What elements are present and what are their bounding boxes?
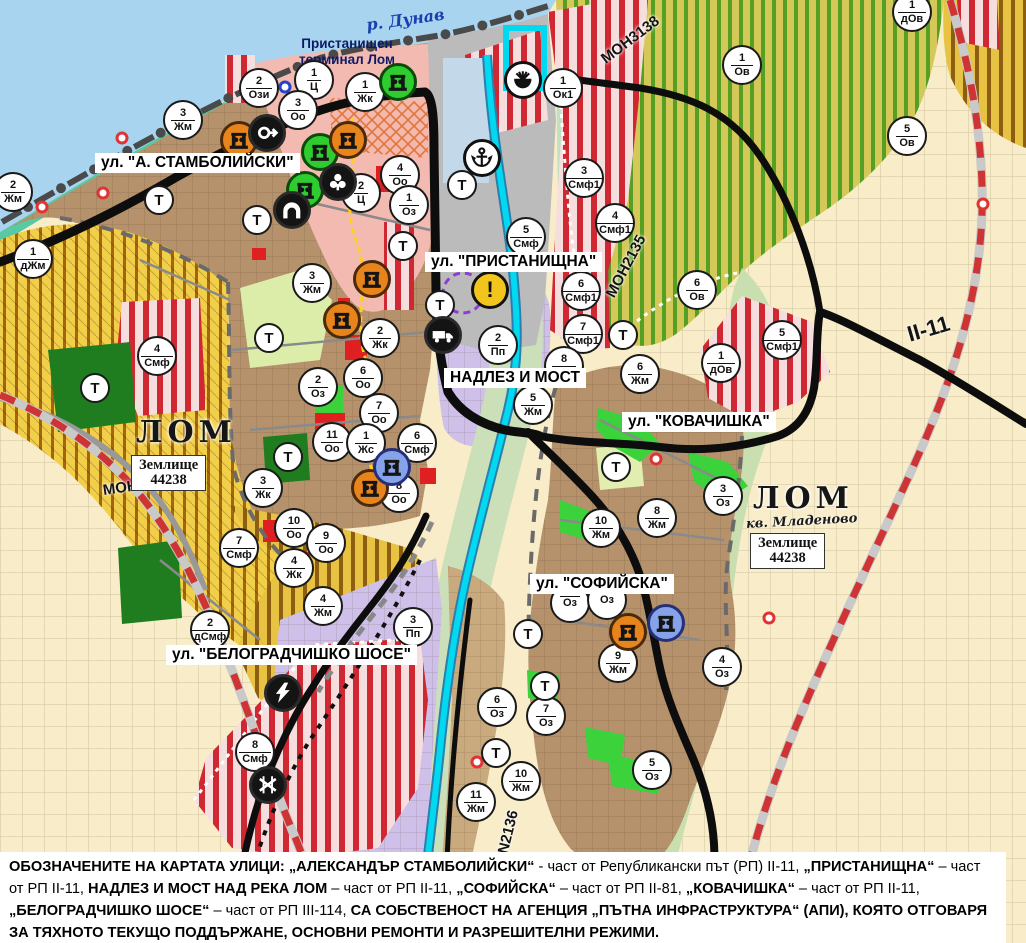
- truck-icon: [424, 316, 462, 354]
- red-dot-marker: [116, 132, 129, 145]
- land-plot-box-zemlishte-west: Землище44238: [131, 455, 206, 491]
- transformer-marker: Т: [530, 671, 560, 701]
- exclamation-icon: !: [471, 271, 509, 309]
- transformer-marker: Т: [481, 738, 511, 768]
- monument-icon: [329, 121, 367, 159]
- zone-marker-Оз-6: 6Оз: [477, 687, 517, 727]
- note-segment: – част от РП II-11,: [327, 881, 456, 897]
- note-segment: ОБОЗНАЧЕНИТЕ НА КАРТАТА УЛИЦИ: „АЛЕКСАНД…: [9, 859, 534, 875]
- zone-marker-Оз-5: 5Оз: [632, 750, 672, 790]
- zone-marker-Жм-6: 6Жм: [620, 354, 660, 394]
- label-city-lom-west: ЛОМ: [136, 415, 237, 450]
- zone-marker-Жм-3: 3Жм: [163, 100, 203, 140]
- note-segment: „КОВАЧИШКА“: [686, 881, 795, 897]
- transformer-marker: Т: [80, 373, 110, 403]
- monument-icon: [647, 604, 685, 642]
- zone-marker-Жм-4: 4Жм: [303, 586, 343, 626]
- zone-marker-Смф-7: 7Смф: [219, 528, 259, 568]
- zone-marker-Ов-1: 1Ов: [722, 45, 762, 85]
- street-label-stambolijski: ул. "А. СТАМБОЛИЙСКИ": [95, 153, 300, 173]
- red-dot-marker: [650, 453, 663, 466]
- zone-marker-Пп-2: 2Пп: [478, 325, 518, 365]
- zone-marker-Жк-4: 4Жк: [274, 548, 314, 588]
- note-segment: – част от РП II-11,: [795, 881, 920, 897]
- monument-icon: [353, 260, 391, 298]
- zone-marker-Смф1-5: 5Смф1: [762, 320, 802, 360]
- transformer-marker: Т: [254, 323, 284, 353]
- zone-marker-дСмф-2: 2дСмф: [190, 610, 230, 650]
- zone-marker-Смф1-6: 6Смф1: [561, 271, 601, 311]
- lightning-icon: [264, 674, 302, 712]
- zone-marker-Оз-1: 1Оз: [389, 185, 429, 225]
- note-segment: НАДЛЕЗ И МОСТ НАД РЕКА ЛОМ: [88, 881, 327, 897]
- zone-marker-Жм-10: 10Жм: [501, 761, 541, 801]
- note-text: ОБОЗНАЧЕНИТЕ НА КАРТАТА УЛИЦИ: „АЛЕКСАНД…: [9, 857, 997, 943]
- zone-marker-Жк-3: 3Жк: [243, 468, 283, 508]
- zone-marker-Ов-5: 5Ов: [887, 116, 927, 156]
- trefoil-icon: [319, 163, 357, 201]
- monument-icon: [373, 448, 411, 486]
- zone-marker-Ок1-1: 1Ок1: [543, 68, 583, 108]
- land-plot-box-zemlishte-east: Землище44238: [750, 533, 825, 569]
- zone-marker-Смф1-3: 3Смф1: [564, 158, 604, 198]
- transformer-marker: Т: [388, 231, 418, 261]
- map-note: ОБОЗНАЧЕНИТЕ НА КАРТАТА УЛИЦИ: „АЛЕКСАНД…: [0, 852, 1006, 943]
- zone-marker-Смф-4: 4Смф: [137, 336, 177, 376]
- zone-marker-Жм-5: 5Жм: [513, 385, 553, 425]
- red-dot-marker: [763, 612, 776, 625]
- key-icon: [248, 114, 286, 152]
- red-dot-marker: [977, 198, 990, 211]
- zone-marker-Смф1-4: 4Смф1: [595, 203, 635, 243]
- zone-marker-Смф-5: 5Смф: [506, 217, 546, 257]
- note-segment: – част от РП II-81,: [556, 881, 686, 897]
- note-segment: – част от РП III-114,: [209, 903, 350, 919]
- zone-marker-Оз-4: 4Оз: [702, 647, 742, 687]
- zone-marker-Жм-3: 3Жм: [292, 263, 332, 303]
- monument-icon: [323, 301, 361, 339]
- monument-icon: [379, 63, 417, 101]
- red-dot-marker: [97, 187, 110, 200]
- transformer-marker: Т: [513, 619, 543, 649]
- transformer-marker: Т: [608, 320, 638, 350]
- label-city-lom-mladenovo: ЛОМ: [753, 481, 854, 516]
- zoning-map-lom: 2Ози1Ц1Жк3Оо3Жм2Жм1дЖм4Оо2Ц1Оз5Смф3Смф11…: [0, 0, 1026, 943]
- arch-icon: [273, 191, 311, 229]
- zone-marker-Жм-11: 11Жм: [456, 782, 496, 822]
- zone-marker-Оо-9: 9Оо: [306, 523, 346, 563]
- note-segment: „ПРИСТАНИЩНА“: [803, 859, 934, 875]
- zone-marker-Ов-6: 6Ов: [677, 270, 717, 310]
- zone-marker-дЖм-1: 1дЖм: [13, 239, 53, 279]
- railway-crossing-icon: [249, 766, 287, 804]
- transformer-marker: Т: [601, 452, 631, 482]
- transformer-marker: Т: [242, 205, 272, 235]
- zone-marker-Жм-10: 10Жм: [581, 508, 621, 548]
- transformer-marker: Т: [144, 185, 174, 215]
- zone-marker-Жк-2: 2Жк: [360, 318, 400, 358]
- zone-marker-Оз-3: 3Оз: [703, 476, 743, 516]
- label-port-terminal: Пристанищен терминал Лом: [262, 36, 432, 67]
- note-segment: - част от Републикански път (РП) II-11,: [534, 859, 803, 875]
- street-label-sofijska: ул. "СОФИЙСКА": [530, 574, 674, 594]
- street-label-kovachishka: ул. "КОВАЧИШКА": [622, 412, 776, 432]
- note-segment: „СОФИЙСКА“: [456, 881, 556, 897]
- transformer-marker: Т: [273, 442, 303, 472]
- red-dot-marker: [36, 201, 49, 214]
- sunburst-icon: [504, 61, 542, 99]
- zone-marker-Оз-7: 7Оз: [526, 696, 566, 736]
- zone-marker-Пп-3: 3Пп: [393, 607, 433, 647]
- anchor-icon: [463, 139, 501, 177]
- street-label-pristanishtna: ул. "ПРИСТАНИЩНА": [425, 252, 602, 272]
- zone-marker-Оз-2: 2Оз: [298, 367, 338, 407]
- zone-marker-Жм-8: 8Жм: [637, 498, 677, 538]
- zone-marker-Оо-6: 6Оо: [343, 358, 383, 398]
- monument-icon: [609, 613, 647, 651]
- street-label-nadlez-i-most: НАДЛЕЗ И МОСТ: [444, 368, 586, 388]
- zone-marker-дОв-1: 1дОв: [701, 343, 741, 383]
- zone-marker-Ози-2: 2Ози: [239, 68, 279, 108]
- street-label-belogradchishko: ул. "БЕЛОГРАДЧИШКО ШОСЕ": [166, 645, 417, 665]
- note-segment: „БЕЛОГРАДЧИШКО ШОСЕ“: [9, 903, 209, 919]
